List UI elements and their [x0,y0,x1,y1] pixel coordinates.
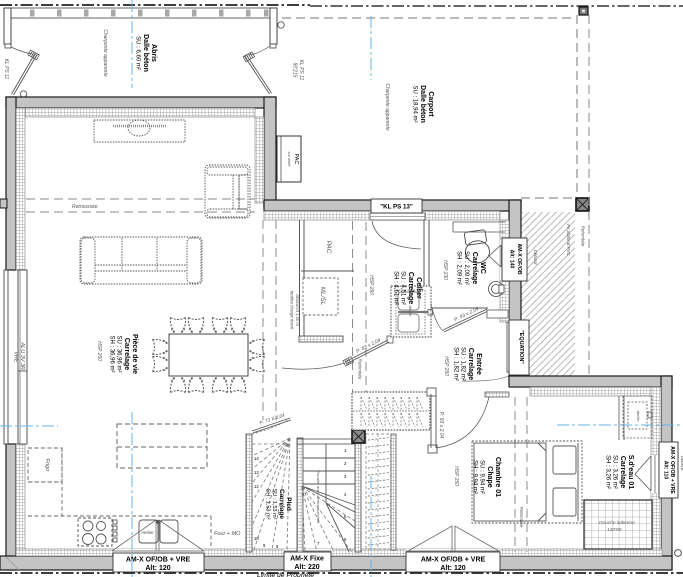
svg-text:Retombée: Retombée [519,507,524,528]
svg-text:HSP 250: HSP 250 [96,341,102,361]
svg-text:SU : 6,60 m²: SU : 6,60 m² [135,36,141,70]
svg-text:SU : 9,94 m²: SU : 9,94 m² [479,460,485,494]
svg-text:Alt: 140: Alt: 140 [509,250,515,269]
svg-text:Alt: 120: Alt: 120 [440,565,465,572]
svg-text:14: 14 [254,456,259,461]
svg-text:120'90: 120'90 [607,527,622,533]
svg-text:Chambre 01: Chambre 01 [494,457,501,497]
svg-text:SU : 4,51 m²: SU : 4,51 m² [400,271,406,305]
svg-text:HSP 250: HSP 250 [368,275,374,295]
svg-text:Obscurcit 1,60 m: Obscurcit 1,60 m [295,294,300,326]
svg-text:"KL PS 13": "KL PS 13" [380,204,413,211]
svg-text:12: 12 [254,484,259,489]
svg-text:Limite de Propriété: Limite de Propriété [257,572,314,577]
svg-text:Douche italienne: Douche italienne [599,520,635,526]
svg-text:Alt: 110: Alt: 110 [663,461,669,480]
svg-text:sur dalle: sur dalle [287,151,292,167]
svg-text:SH : 1,82 m²: SH : 1,82 m² [453,347,459,381]
svg-text:Charpente apparente: Charpente apparente [384,83,390,130]
svg-text:SU : 3,26 m²: SU : 3,26 m² [612,455,618,489]
svg-text:Dalle béton: Dalle béton [142,34,149,72]
svg-text:Carrelage: Carrelage [619,456,626,488]
svg-text:Alt: 220: Alt: 220 [294,564,319,571]
svg-text:Cellier: Cellier [415,277,422,299]
svg-text:Carrelage: Carrelage [123,338,130,370]
svg-text:KL PS 11: KL PS 11 [298,60,304,81]
svg-text:Entrée: Entrée [475,353,482,375]
svg-text:AM-X OF/OB: AM-X OF/OB [516,243,522,274]
svg-text:Carport: Carport [427,91,434,117]
svg-text:SH : 1,53 m²: SH : 1,53 m² [265,489,271,520]
svg-text:Charpente apparente: Charpente apparente [102,29,108,76]
svg-text:Carrelage: Carrelage [471,252,478,284]
svg-text:Carrelage: Carrelage [407,272,414,304]
svg-text:SU : 36,96 m²: SU : 36,96 m² [116,335,122,372]
svg-text:AM-X OF/OB + VRE: AM-X OF/OB + VRE [421,557,486,564]
svg-text:VRE: VRE [13,351,19,363]
svg-text:Retombée: Retombée [581,226,586,247]
svg-text:Atelier: Atelier [140,530,154,535]
svg-text:Escalier avec contre-marches: Escalier avec contre-marches [316,471,321,524]
svg-text:Chape: Chape [486,466,493,488]
svg-text:SH : 2,09 m²: SH : 2,09 m² [456,251,462,285]
svg-text:ML/SL: ML/SL [319,287,326,306]
svg-text:HSP 230: HSP 230 [442,260,448,280]
svg-text:Carrelage: Carrelage [467,348,474,380]
svg-text:P: 93 x 2,04: P: 93 x 2,04 [438,412,444,439]
svg-text:SH : 9,94 m²: SH : 9,94 m² [472,460,478,494]
svg-text:SU : 2,09 m²: SU : 2,09 m² [463,251,469,285]
svg-text:S.d'eau 01: S.d'eau 01 [627,455,634,489]
svg-text:90'215: 90'215 [292,63,298,78]
svg-text:Retombée: Retombée [358,359,363,380]
svg-text:AM-X OF/OB + VRE: AM-X OF/OB + VRE [126,557,191,564]
svg-text:13: 13 [254,470,259,475]
svg-text:Alt: 120: Alt: 120 [145,565,170,572]
svg-text:Retroussée: Retroussée [72,204,98,210]
svg-text:KL PS 11: KL PS 11 [3,59,9,80]
svg-text:Abris: Abris [150,44,157,62]
svg-text:AM-X Fixe: AM-X Fixe [290,556,324,563]
svg-text:SU : 1,82 m²: SU : 1,82 m² [460,347,466,381]
svg-text:"EQUATION": "EQUATION" [518,330,524,364]
svg-text:PAC: PAC [325,241,332,254]
svg-text:WC: WC [479,262,486,274]
svg-text:SH : 4,51 m²: SH : 4,51 m² [393,271,399,305]
svg-text:Dalle béton: Dalle béton [419,85,426,123]
svg-text:ALU 3V 3R.: ALU 3V 3R. [19,341,25,371]
svg-text:Four + MO: Four + MO [214,531,241,537]
svg-text:Atelier: Atelier [408,304,413,317]
svg-text:Frigo: Frigo [44,459,50,472]
svg-text:Pièce de vie: Pièce de vie [131,334,138,374]
svg-text:SH : 3,26 m²: SH : 3,26 m² [605,455,611,489]
svg-text:10: 10 [254,536,259,541]
svg-text:fenêtre charge évent: fenêtre charge évent [290,291,295,330]
svg-text:Débord: Débord [533,250,538,265]
svg-text:HSP 250: HSP 250 [453,466,459,486]
svg-text:Fx plafond PVC: Fx plafond PVC [566,224,571,256]
svg-text:Atelier: Atelier [636,409,641,422]
svg-text:Carrelage: Carrelage [278,489,285,519]
svg-text:SH : 36,96 m²: SH : 36,96 m² [109,335,115,372]
svg-text:AM-X OF/OB + VRE: AM-X OF/OB + VRE [669,446,675,494]
svg-text:Plcd: Plcd [285,497,292,511]
svg-text:PAC: PAC [293,154,299,165]
svg-text:SU : 18,94 m²: SU : 18,94 m² [412,85,418,122]
svg-text:SU : 1,53 m²: SU : 1,53 m² [271,489,277,520]
svg-text:HSP 250: HSP 250 [443,356,449,376]
